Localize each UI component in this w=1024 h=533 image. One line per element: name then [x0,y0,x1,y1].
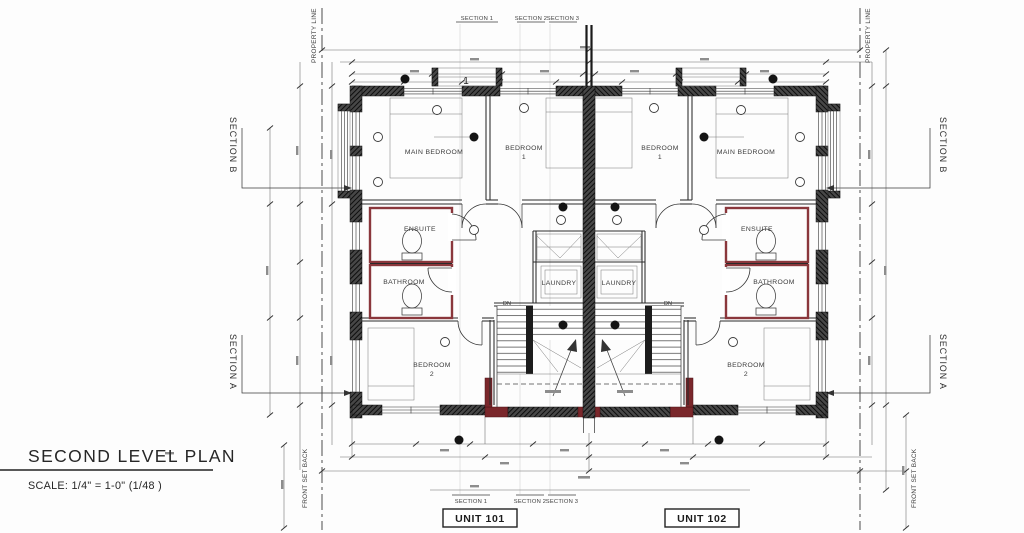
floor-plan-sheet: MAIN BEDROOM MAIN BEDROOM BEDROOM 1 BEDR… [0,0,1024,533]
room-label-bedroom2-left: BEDROOM [413,362,451,369]
room-label-main-bedroom-right: MAIN BEDROOM [717,149,775,156]
room-label-bedroom1-right: BEDROOM [641,145,679,152]
party-wall [583,86,595,418]
section-a-left-label: SECTION A [228,334,238,390]
floor-plan-drawing: MAIN BEDROOM MAIN BEDROOM BEDROOM 1 BEDR… [0,0,1024,533]
unit-101-plan [338,68,589,445]
room-label-laundry-right: LAUNDRY [602,280,637,287]
room-label-bedroom1-right-num: 1 [658,154,662,161]
unit-102-label: UNIT 102 [677,513,727,525]
property-line-left-label: PROPERTY LINE [311,8,318,63]
section-a-right-label: SECTION A [938,334,948,390]
dimension-text-smudges [165,46,904,489]
stair-down-label-right: DN [664,301,672,307]
room-label-bathroom-left: BATHROOM [383,279,425,286]
room-label-bedroom2-right-num: 2 [744,371,748,378]
room-label-bedroom1-left: BEDROOM [505,145,543,152]
sheet-title: SECOND LEVEL PLAN [28,446,236,466]
room-label-bedroom2-left-num: 2 [430,371,434,378]
section-b-left-label: SECTION B [228,117,238,173]
room-label-ensuite-left: ENSUITE [404,226,436,233]
front-setback-right-label: FRONT SET BACK [911,448,918,508]
sheet-scale: SCALE: 1/4" = 1-0" (1/48 ) [28,480,162,492]
section2-bottom-label: SECTION 2 [514,499,546,505]
room-label-bedroom1-left-num: 1 [522,154,526,161]
section-b-right-label: SECTION B [938,117,948,173]
room-label-bathroom-right: BATHROOM [753,279,795,286]
room-label-bedroom2-right: BEDROOM [727,362,765,369]
room-label-main-bedroom-left: MAIN BEDROOM [405,149,463,156]
section2-top-label: SECTION 2 [515,16,547,22]
unit-101-label: UNIT 101 [455,513,505,525]
unit-102-plan [589,68,840,445]
front-setback-left-label: FRONT SET BACK [302,448,309,508]
title-block: SECOND LEVEL PLAN SCALE: 1/4" = 1-0" (1/… [0,446,236,492]
dimension-lines [165,46,909,531]
section3-bottom-label: SECTION 3 [546,499,578,505]
room-label-ensuite-right: ENSUITE [741,226,773,233]
window-tag-label: 1 [463,76,469,87]
section1-top-label: SECTION 1 [461,16,493,22]
section3-top-label: SECTION 3 [547,16,579,22]
section1-bottom-label: SECTION 1 [455,499,487,505]
property-line-right-label: PROPERTY LINE [865,8,872,63]
unit-tags: UNIT 101 UNIT 102 [443,509,739,527]
stair-down-label-left: DN [503,301,511,307]
room-label-laundry-left: LAUNDRY [542,280,577,287]
